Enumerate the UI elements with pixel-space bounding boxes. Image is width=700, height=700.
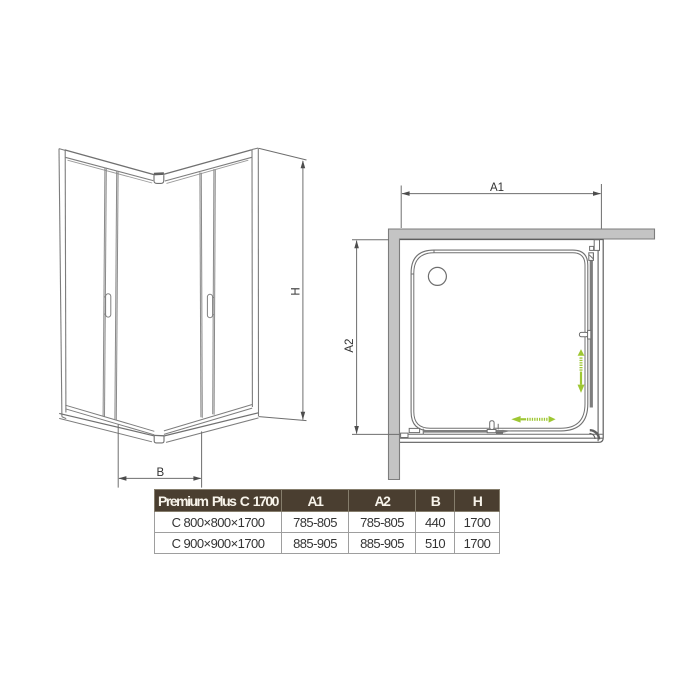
svg-text:A1: A1 [490, 182, 504, 194]
svg-text:B: B [156, 467, 164, 479]
svg-text:A2: A2 [344, 339, 356, 353]
svg-text:H: H [290, 287, 302, 295]
